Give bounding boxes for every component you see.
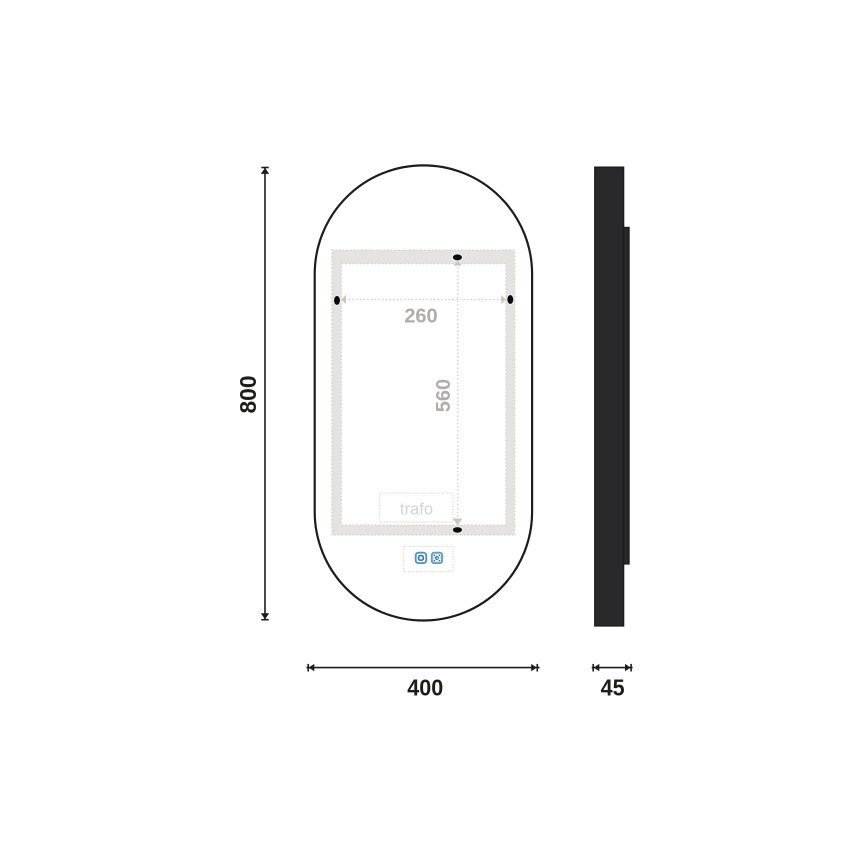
svg-text:trafo: trafo xyxy=(400,501,433,519)
svg-text:560: 560 xyxy=(433,379,455,412)
svg-text:800: 800 xyxy=(235,376,261,414)
svg-text:45: 45 xyxy=(601,674,625,700)
svg-text:400: 400 xyxy=(407,674,443,700)
svg-text:260: 260 xyxy=(404,306,437,328)
